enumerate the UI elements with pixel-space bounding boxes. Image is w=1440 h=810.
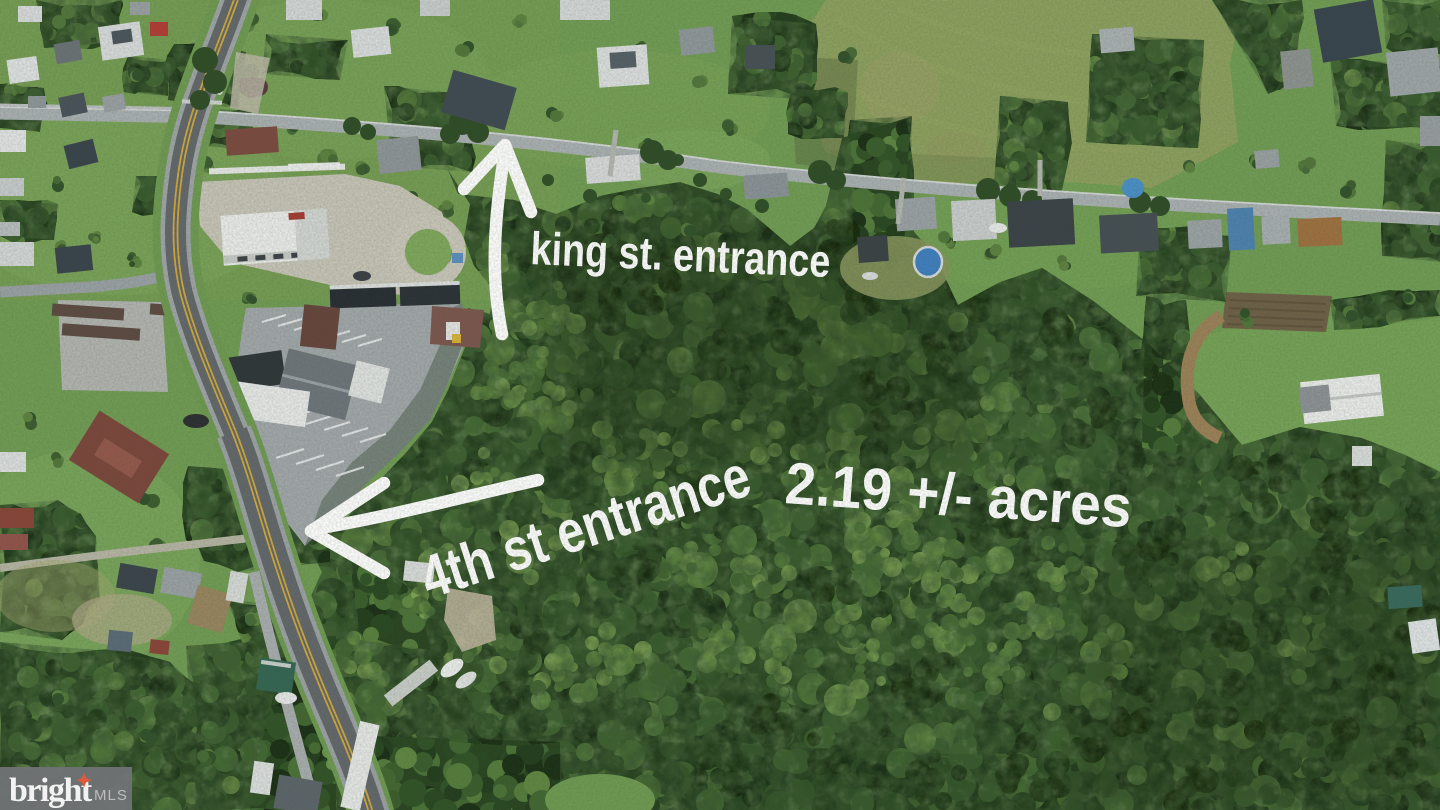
svg-text:MLS: MLS [94,787,128,804]
svg-text:bright: bright [9,772,93,809]
